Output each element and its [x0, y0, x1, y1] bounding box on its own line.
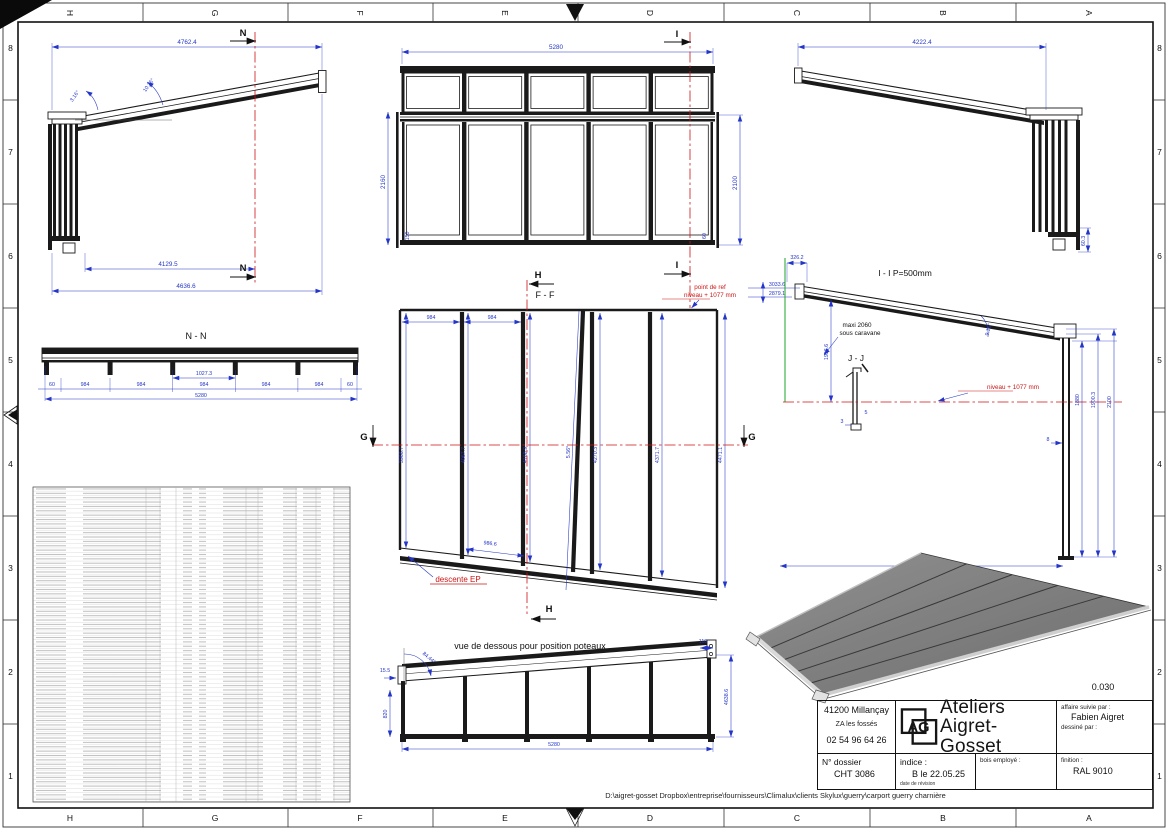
grid-letter: D	[647, 813, 653, 823]
project-contacts: affaire suivie par : Fabien Aigret dessi…	[1057, 701, 1152, 753]
company-zone: ZA les fossés	[818, 721, 895, 728]
indice-cell: indice : B le 22.05.25 date de révision	[896, 754, 976, 789]
dim-label: 4270.3	[593, 447, 599, 463]
section-marker-g: G	[748, 432, 755, 443]
dim-label: 5280	[548, 742, 560, 748]
center-mark-bottom	[566, 808, 584, 826]
dim-label: 4222.4	[912, 39, 932, 46]
view-section-ii: 3033.6 2879.1 326.2 1956.6 maxi 2060 sou…	[748, 255, 1122, 566]
dessine-label: dessiné par :	[1061, 724, 1148, 731]
section-marker-g: G	[360, 432, 367, 443]
dim-label: 8	[1047, 437, 1050, 443]
grid-letter: C	[792, 10, 802, 16]
grid-number: 4	[1157, 459, 1162, 469]
view-section-nn: N - N 60 984 984 984 984 984 60 1027.3 5…	[38, 331, 362, 401]
grid-number: 2	[1157, 667, 1162, 677]
grid-letter: G	[212, 813, 219, 823]
dim-label: 3966.7	[399, 447, 405, 463]
dossier-value: CHT 3086	[834, 769, 891, 779]
dim-label: 984	[315, 382, 324, 388]
dim-label: 60	[347, 382, 353, 388]
section-marker-h: H	[546, 604, 553, 615]
view-title: F - F	[536, 290, 555, 300]
dim-label: 4129.5	[158, 261, 178, 268]
roof-3d-render	[746, 553, 1151, 703]
grid-number: 6	[1157, 251, 1162, 261]
dim-label: 984	[137, 382, 146, 388]
grid-number: 3	[1157, 563, 1162, 573]
dim-label: 4067.7	[461, 447, 467, 463]
angle-label: 10.36°	[142, 77, 156, 93]
view-underside: vue de dessous pour position poteaux 15.…	[380, 639, 734, 752]
view-title: N - N	[186, 331, 207, 341]
grid-number: 1	[1157, 771, 1162, 781]
grid-number: 6	[8, 251, 13, 261]
company-identity: AG Ateliers Aigret-Gosset	[896, 701, 1057, 753]
grid-number: 8	[8, 43, 13, 53]
dim-label: 4762.4	[177, 39, 197, 46]
finition-label: finition :	[1061, 757, 1148, 764]
grid-number: 7	[1157, 147, 1162, 157]
view-front-elevation: 5280 2160 2100 150 60 I I	[380, 29, 743, 308]
company-city: 41200 Millançay	[818, 705, 895, 715]
dim-label: 2879.1	[769, 291, 785, 297]
indice-label: indice :	[900, 757, 971, 767]
bois-cell: bois employé :	[976, 754, 1057, 789]
dim-label: 2100	[732, 176, 739, 191]
company-name-1: Ateliers	[940, 698, 1056, 717]
grid-number: 2	[8, 667, 13, 677]
drawing-sheet: H G F E D C B A H G F E D C B A 8 7 6 5 …	[0, 0, 1168, 830]
dim-label: 1027.3	[196, 371, 212, 377]
dim-label: 984	[262, 382, 271, 388]
grid-letter: E	[500, 10, 510, 16]
dossier-label: N° dossier	[822, 757, 891, 767]
grid-letter: H	[65, 10, 75, 16]
dim-label: 984	[488, 315, 497, 321]
indice-value: B le 22.05.25	[912, 769, 971, 779]
title-block: 41200 Millançay ZA les fossés 02 54 96 6…	[817, 700, 1153, 790]
grid-number: 4	[8, 459, 13, 469]
grid-letter: F	[355, 10, 365, 15]
grid-letter: B	[940, 813, 946, 823]
dim-label: 3033.6	[769, 282, 785, 288]
grid-letter: A	[1086, 813, 1092, 823]
dim-label: 2100	[1107, 396, 1113, 408]
dim-label: 820	[383, 710, 389, 719]
grid-letter: F	[357, 813, 362, 823]
grid-number: 1	[8, 771, 13, 781]
dim-label: 4471.1	[718, 447, 724, 463]
bois-label: bois employé :	[980, 757, 1052, 764]
dim-label: 1900.3	[1091, 392, 1097, 408]
dim-label: 984	[200, 382, 209, 388]
dim-label: 984	[427, 315, 436, 321]
center-mark-left	[4, 406, 17, 424]
dim-label: 1956.6	[824, 344, 830, 360]
descente-ep-note: descente EP	[435, 575, 480, 584]
dim-label: 60.3	[1081, 236, 1087, 246]
dim-label: 15.5	[380, 668, 390, 674]
ref-note: point de ref	[694, 284, 726, 291]
grid-letter: E	[502, 813, 508, 823]
revision-label: date de révision	[900, 781, 935, 787]
company-phone: 02 54 96 64 26	[818, 735, 895, 745]
company-logo-icon: AG	[899, 705, 940, 749]
finition-cell: finition : RAL 9010	[1057, 754, 1152, 789]
dim-label: 5280	[195, 393, 207, 399]
grid-letter: H	[67, 813, 73, 823]
affaire-value: Fabien Aigret	[1071, 712, 1148, 722]
niveau-note: niveau + 1077 mm	[987, 384, 1039, 391]
ref-note: niveau + 1077 mm	[684, 292, 736, 299]
grid-letter: A	[1084, 10, 1094, 16]
dim-label: 2160	[380, 175, 387, 190]
dim-label: 110	[699, 639, 707, 645]
dim-label: 5280	[549, 44, 564, 51]
dim-label: 984	[81, 382, 90, 388]
dim-label: 4638.6	[724, 689, 730, 705]
dim-label: 60	[49, 382, 55, 388]
dim-label: 4168.9	[523, 447, 529, 463]
file-path: D:\aigret-gosset Dropbox\entreprise\four…	[398, 791, 1153, 800]
angle-label: 5.56°	[566, 446, 572, 458]
grid-letter: B	[938, 10, 948, 16]
grid-number: 8	[1157, 43, 1162, 53]
grid-number: 5	[8, 355, 13, 365]
grid-number: 3	[8, 563, 13, 573]
view-side-elevation-right: 4222.4 60.3 I - I P=500mm	[795, 39, 1092, 278]
section-title-ii: I - I P=500mm	[878, 268, 932, 278]
dossier-cell: N° dossier CHT 3086	[818, 754, 896, 789]
dim-label: 60	[702, 233, 708, 239]
dim-label: 3	[841, 419, 844, 425]
note-maxi: sous caravane	[840, 330, 881, 337]
company-name-2: Aigret-Gosset	[940, 717, 1056, 756]
center-mark-top	[566, 4, 584, 21]
grid-letter: D	[645, 10, 655, 16]
company-address: 41200 Millançay ZA les fossés 02 54 96 6…	[818, 701, 896, 753]
view-caption: vue de dessous pour position poteaux	[454, 641, 606, 651]
grid-letter: C	[794, 813, 800, 823]
dim-label: 1880	[1075, 394, 1081, 406]
finition-value: RAL 9010	[1073, 766, 1148, 776]
view-side-elevation-left: 4762.4 3.16° 10.36° N 4129.5 N 4636.6	[48, 28, 326, 295]
note-maxi: maxi 2060	[842, 322, 872, 329]
dim-label: 5	[865, 410, 868, 416]
grid-number: 7	[8, 147, 13, 157]
affaire-label: affaire suivie par :	[1061, 704, 1148, 711]
dim-label: 326.2	[790, 255, 803, 261]
detail-title: J - J	[848, 353, 864, 363]
section-marker-n: N	[240, 263, 247, 274]
dim-label: 4636.6	[176, 283, 196, 290]
angle-label: 3.16°	[69, 90, 81, 104]
corner-cut-mark	[0, 0, 52, 29]
dim-label: 986.6	[483, 540, 497, 548]
section-marker-i: I	[676, 260, 679, 271]
view-plan-ff: F - F point de ref niveau + 1077 mm 984 …	[360, 270, 755, 619]
dim-label: 4371.7	[655, 447, 661, 463]
bom-table	[33, 487, 350, 802]
dim-label: 150	[405, 232, 411, 241]
grid-number: 5	[1157, 355, 1162, 365]
company-logo-letters: AG	[908, 720, 930, 736]
section-marker-h: H	[535, 270, 542, 281]
section-marker-n: N	[240, 28, 247, 39]
scale-value: 0.030	[1068, 682, 1138, 692]
section-marker-i: I	[676, 29, 679, 40]
grid-letter: G	[210, 10, 220, 17]
